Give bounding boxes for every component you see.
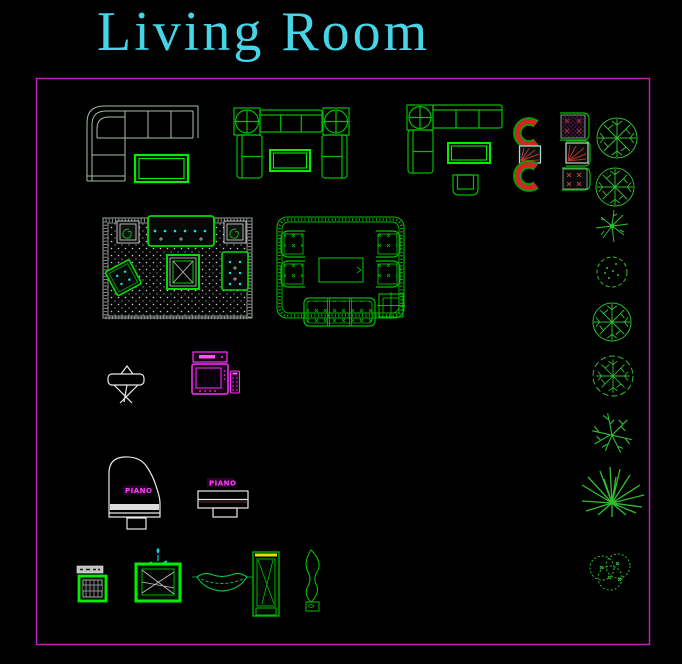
lamp-icon [150, 548, 167, 564]
accent-chairs-block[interactable] [560, 113, 590, 190]
stitched-chair-icon [562, 168, 590, 190]
fan-chair-icon [566, 141, 590, 166]
piano-bench-icon [213, 508, 237, 517]
piano-bench-icon [127, 518, 146, 529]
round-tree-icon [593, 303, 631, 341]
cad-drawing-canvas: Living Room [0, 0, 682, 664]
upright-piano-label: PIANO [209, 480, 236, 488]
drawing-area: PIANO PIANO [0, 0, 682, 664]
loveseat-icon [222, 252, 248, 290]
barrel-chair-icon [517, 122, 536, 145]
checker-chair-icon [560, 113, 589, 140]
tv-cabinet-block[interactable] [136, 548, 180, 601]
grand-piano-label: PIANO [125, 487, 152, 495]
coffee-table-icon [448, 143, 490, 163]
round-tree-icon [597, 118, 637, 158]
l-sofa-set-block[interactable] [407, 105, 502, 195]
barrel-chair-icon [517, 165, 536, 188]
tufted-armchair-icon [376, 231, 400, 257]
rug-sofa-set-tufted-block[interactable] [277, 217, 405, 326]
remote-control-icon [231, 371, 240, 393]
vcr-icon [193, 352, 227, 362]
sectional-sofa-block[interactable] [87, 106, 198, 182]
round-tree-icon [596, 168, 634, 206]
u-sofa-set-block[interactable] [234, 108, 349, 178]
radio-cabinet-block[interactable] [77, 566, 106, 601]
barrel-chairs-block[interactable] [517, 122, 540, 188]
branch-tree-icon [592, 413, 632, 453]
rug-sofa-set-dotted-block[interactable] [103, 216, 252, 318]
spiky-plant-icon [582, 467, 644, 517]
corner-table-icon [117, 221, 139, 243]
leafy-tree-icon [593, 356, 633, 396]
bush-icon [590, 554, 630, 590]
center-table-icon [319, 258, 363, 282]
tufted-armchair-icon [281, 261, 305, 287]
tv-set-block[interactable] [192, 352, 240, 394]
hammock-block[interactable] [192, 573, 253, 591]
star-plant-icon [596, 210, 628, 242]
tufted-armchair-icon [376, 261, 400, 287]
candle-sculpture-block[interactable] [306, 550, 319, 611]
tufted-sofa-icon [148, 216, 214, 246]
upright-piano-block[interactable]: PIANO [198, 478, 248, 517]
grand-piano-block[interactable]: PIANO [109, 457, 160, 529]
tv-icon [192, 364, 228, 394]
coffee-table-icon [135, 155, 188, 182]
tufted-sofa-icon [304, 298, 375, 326]
folding-chair-block[interactable] [108, 366, 144, 403]
corner-table-icon [224, 221, 246, 243]
tufted-armchair-icon [281, 231, 305, 257]
drawing-border [37, 79, 650, 645]
scalloped-tree-icon [597, 257, 627, 287]
center-table-icon [167, 255, 199, 289]
tall-cabinet-block[interactable] [253, 552, 279, 616]
coffee-table-icon [270, 150, 310, 171]
plants-column[interactable] [582, 118, 644, 590]
